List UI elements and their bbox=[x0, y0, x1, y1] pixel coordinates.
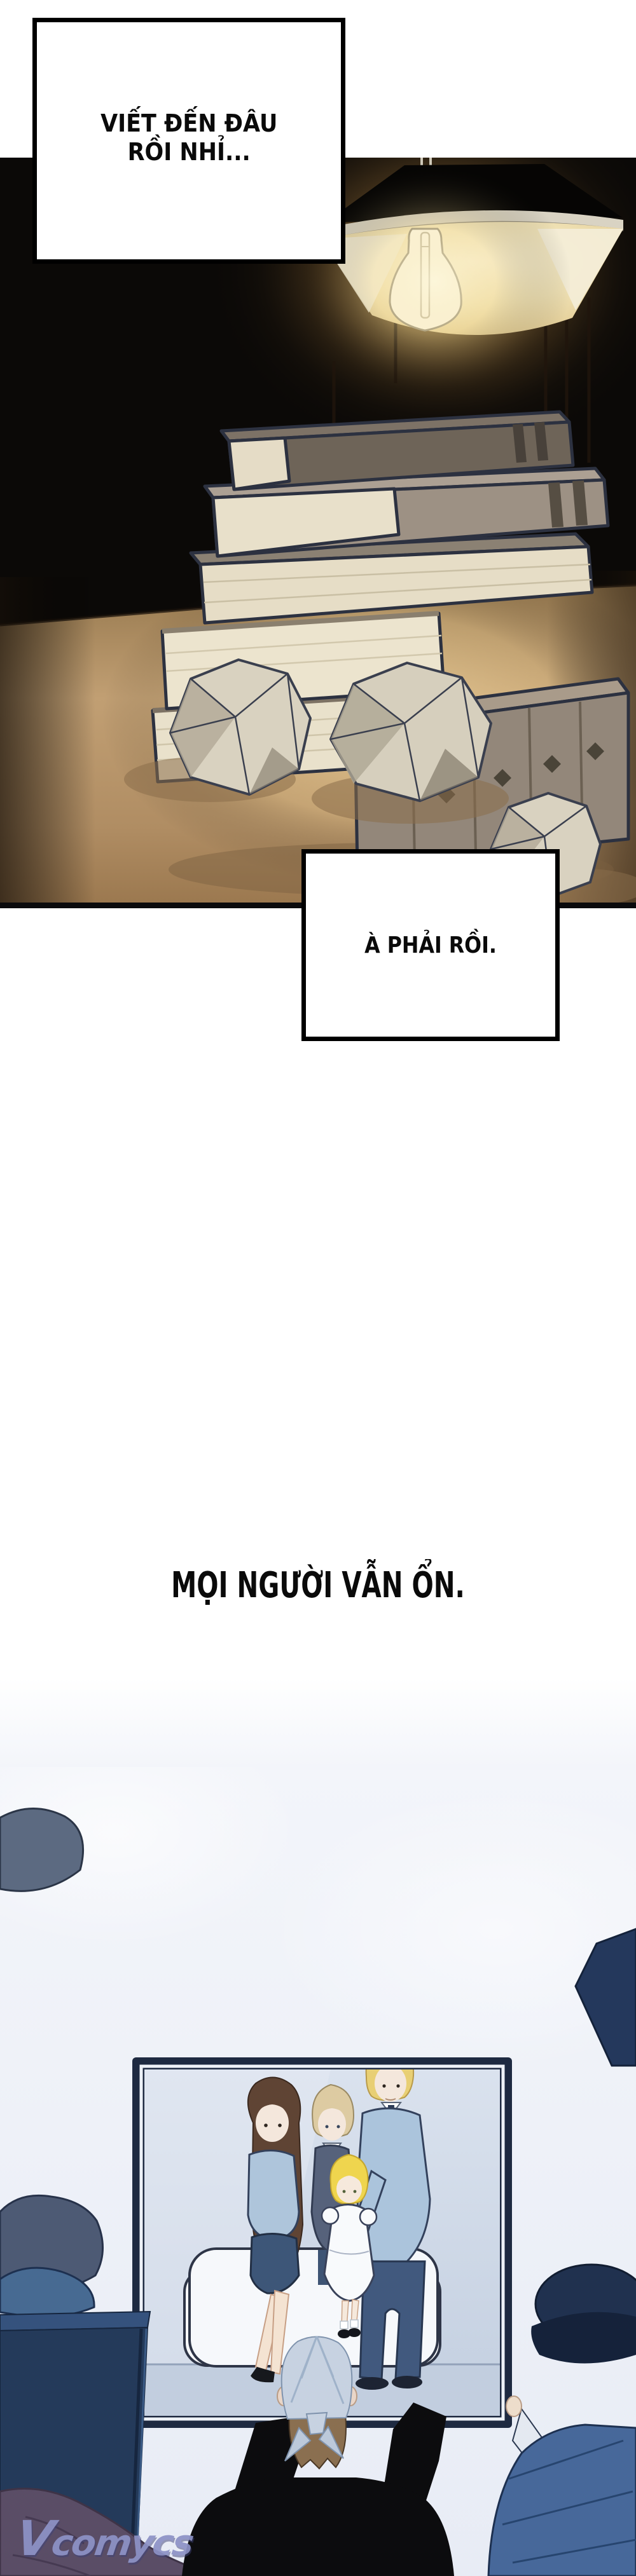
comic-page: VIẾT ĐẾN ĐÂU RỒI NHỈ... À PHẢI RỒI. MỌI … bbox=[0, 0, 636, 2576]
watermark: Vcomycs bbox=[13, 2511, 197, 2566]
girl-shoe bbox=[348, 2328, 361, 2337]
narration: MỌI NGƯỜI VẪN ỔN. bbox=[0, 1565, 636, 1606]
headscarf bbox=[282, 2336, 352, 2419]
panel-photo-scene bbox=[0, 1767, 636, 2576]
paper-ball bbox=[170, 660, 310, 794]
narration-text: MỌI NGƯỜI VẪN ỔN. bbox=[89, 1565, 547, 1606]
raised-navy-arm bbox=[576, 1929, 636, 2066]
paper-ball bbox=[331, 663, 491, 801]
speech-line: RỒI NHỈ... bbox=[100, 138, 277, 166]
speech-line: À PHẢI RỒI. bbox=[364, 932, 497, 958]
speech-line: VIẾT ĐẾN ĐÂU bbox=[100, 109, 277, 137]
panel-desk-scene bbox=[0, 158, 636, 908]
reaching-hand bbox=[506, 2396, 522, 2416]
mother-skirt bbox=[251, 2233, 299, 2293]
speech-box-2: À PHẢI RỒI. bbox=[301, 849, 560, 1041]
scarf-knot bbox=[307, 2413, 327, 2434]
scene-fade bbox=[0, 1678, 636, 1767]
black-robe bbox=[182, 2477, 454, 2576]
speech-box-1: VIẾT ĐẾN ĐÂU RỒI NHỈ... bbox=[32, 18, 345, 264]
gray-cloth-blob bbox=[0, 1808, 83, 1891]
